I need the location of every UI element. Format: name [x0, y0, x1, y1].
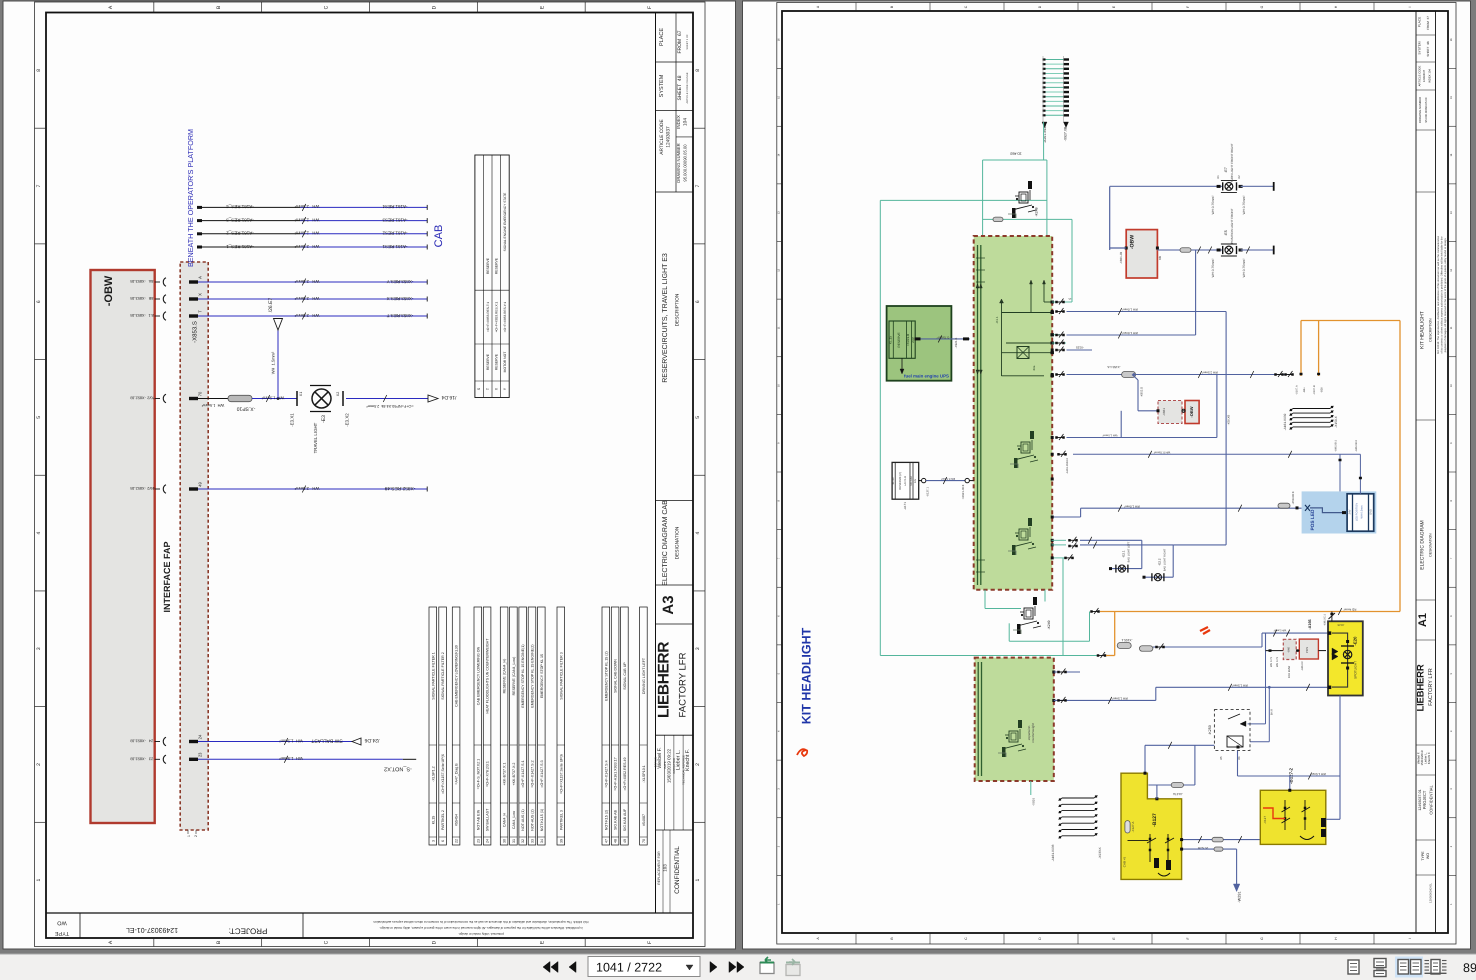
- svg-text:KL.15: KL.15: [888, 336, 892, 345]
- svg-text:HEAT FLOODLIGHTS UN COUNTERWEI: HEAT FLOODLIGHTS UN COUNTERWEIGHT: [486, 638, 490, 714]
- svg-text:C: C: [324, 940, 330, 944]
- svg-text:ARTICLE CODE: ARTICLE CODE: [659, 119, 665, 154]
- svg-text:-X155.1: -X155.1: [1121, 638, 1132, 642]
- svg-text:7: 7: [36, 184, 42, 187]
- svg-text:4: 4: [36, 531, 42, 534]
- svg-text:23: 23: [476, 839, 480, 843]
- svg-text:WH 2.5mm²: WH 2.5mm²: [294, 296, 319, 301]
- svg-text:PLACE: PLACE: [659, 28, 665, 46]
- svg-text:2: 2: [695, 763, 701, 766]
- svg-text:24V: 24V: [1349, 509, 1352, 514]
- svg-text:-E3.X1: -E3.X1: [290, 413, 295, 427]
- svg-text:4: 4: [695, 531, 701, 534]
- svg-text:-XLSP1.2: -XLSP1.2: [431, 766, 435, 781]
- svg-text:NOT-K15 (2): NOT-K15 (2): [604, 810, 608, 830]
- svg-text:-A166: -A166: [1308, 619, 1312, 629]
- svg-text:23: 23: [198, 752, 203, 757]
- svg-text:-X927.XB: -X927.XB: [1064, 126, 1068, 141]
- svg-text:34: 34: [540, 839, 544, 843]
- svg-text:WO: WO: [57, 920, 67, 926]
- svg-text:CAB EMERGENCY LOWERING(KL30: CAB EMERGENCY LOWERING(KL30: [455, 645, 459, 707]
- svg-text:BN R: BN R: [1271, 709, 1274, 715]
- svg-text:6: 6: [36, 300, 42, 303]
- svg-text:WH 1.5mm²: WH 1.5mm²: [261, 395, 284, 400]
- svg-text:1: 1: [695, 879, 701, 882]
- svg-text:WH 0.75mm²: WH 0.75mm²: [1211, 259, 1215, 278]
- svg-text:6: 6: [695, 300, 701, 303]
- svg-text:KIT HEADLIGHT: KIT HEADLIGHT: [1420, 311, 1426, 349]
- svg-text:SYSTEM: SYSTEM: [1418, 41, 1422, 54]
- svg-text:DESCRIPTION: DESCRIPTION: [675, 293, 681, 326]
- svg-text:RESERVE: RESERVE: [494, 257, 498, 274]
- svg-text:8B: 8B: [1158, 256, 1162, 260]
- svg-text:24V: 24V: [911, 336, 915, 343]
- svg-text:WH 1.5mm²: WH 1.5mm²: [271, 351, 276, 374]
- svg-text:-X107.A: -X107.A: [1296, 385, 1299, 395]
- svg-text:SIG.KAB AUF: SIG.KAB AUF: [623, 808, 627, 831]
- svg-text:-X852.RES.49: -X852.RES.49: [384, 485, 415, 491]
- svg-text:X1: X1: [299, 392, 303, 396]
- svg-text:SPOT: SPOT: [1337, 624, 1344, 627]
- svg-text:A3: A3: [660, 595, 677, 614]
- svg-text:-E5: -E5: [1224, 230, 1228, 236]
- svg-text:ARTICLE CODE CHANGE: ARTICLE CODE CHANGE: [686, 72, 689, 103]
- svg-text:WH 1mm²: WH 1mm²: [1274, 629, 1287, 633]
- svg-text:-X853.RES.Y: -X853.RES.Y: [387, 279, 414, 284]
- svg-text:TURN LIGHT FRONT RIGHT: TURN LIGHT FRONT RIGHT: [1230, 143, 1234, 182]
- svg-text:-B127: -B127: [1152, 813, 1158, 827]
- svg-text:23: 23: [149, 756, 153, 760]
- svg-text:LED POSITION: LED POSITION: [1356, 503, 1359, 521]
- svg-text:SIG.KAB: SIG.KAB: [910, 476, 913, 486]
- svg-text:30: 30: [503, 839, 507, 843]
- svg-text:SHEET 4B: SHEET 4B: [1426, 41, 1430, 56]
- svg-text:-X853.S: -X853.S: [192, 321, 199, 343]
- svg-text:RESERVE (2): RESERVE (2): [898, 472, 902, 490]
- svg-text:6: 6: [441, 840, 445, 842]
- svg-text:X1: X1: [1216, 175, 1220, 179]
- svg-text:8: 8: [36, 69, 42, 72]
- svg-text:WH 2.5mm²: WH 2.5mm²: [294, 204, 319, 209]
- svg-text:F: F: [647, 6, 653, 9]
- svg-text:LIEBHERR: LIEBHERR: [656, 642, 673, 718]
- svg-text:D: D: [431, 5, 437, 9]
- svg-text:WH 1.0mm²: WH 1.0mm²: [1124, 504, 1140, 508]
- svg-text:#54087: #54087: [642, 814, 646, 826]
- svg-text:=O+F=NP50.X4:8k 2.5mm²: =O+F=NP50.X4:8k 2.5mm²: [366, 404, 414, 408]
- svg-text:-E20: -E20: [1353, 636, 1358, 646]
- svg-text:-X952.D: -X952.D: [1140, 387, 1144, 397]
- svg-text:/16.D4: /16.D4: [441, 394, 456, 400]
- svg-text:SIGNAL CAB UP: SIGNAL CAB UP: [623, 662, 627, 690]
- svg-text:1200000343-EL: 1200000343-EL: [1429, 883, 1433, 903]
- svg-text:PLACE: PLACE: [1418, 17, 1422, 27]
- svg-text:89: 89: [1463, 961, 1476, 975]
- svg-text:-K1.1: -K1.1: [995, 316, 999, 324]
- svg-text:12493037: 12493037: [666, 126, 672, 148]
- svg-text:1D.4B3: 1D.4B3: [1010, 152, 1021, 156]
- svg-text:KIT HEADLIGHT: KIT HEADLIGHT: [800, 627, 814, 724]
- svg-text:RESERVE: RESERVE: [486, 353, 490, 370]
- svg-text:DRAWING NUMBER: DRAWING NUMBER: [676, 143, 681, 182]
- svg-text:protected. Utility model or de: protected. Utility model or design.: [458, 932, 504, 936]
- svg-text:-A161.X933:2: -A161.X933:2: [1066, 458, 1069, 474]
- svg-text:counterweight: counterweight: [1031, 723, 1035, 743]
- svg-text:SIGNAL PARTICLE FILTER 1: SIGNAL PARTICLE FILTER 1: [431, 652, 435, 699]
- svg-text:TRAVEL LIGHT: TRAVEL LIGHT: [313, 422, 318, 453]
- svg-text:=O+F=X1157,Seite UP(6: =O+F=X1157,Seite UP(6: [559, 754, 563, 794]
- svg-text:-X46.XC: -X46.XC: [1301, 661, 1304, 671]
- svg-text:-A161.RES_3: -A161.RES_3: [226, 217, 254, 222]
- svg-text:95.000.00090.05.00: 95.000.00090.05.00: [1424, 97, 1428, 122]
- svg-text:=X921.B: =X921.B: [906, 334, 910, 346]
- svg-text:SYSTEM: SYSTEM: [659, 74, 665, 97]
- svg-text:1: 1: [187, 835, 191, 837]
- svg-text:NOT-KL15 (1): NOT-KL15 (1): [540, 809, 544, 831]
- svg-text:PROJECT: PROJECT: [1422, 790, 1427, 809]
- svg-text:WH 1.5mm²: WH 1.5mm²: [1102, 434, 1117, 438]
- svg-text:F: F: [1186, 6, 1190, 8]
- svg-text:-A161.RES_2: -A161.RES_2: [226, 231, 254, 236]
- svg-text:+A171.B: +A171.B: [904, 476, 907, 486]
- svg-text:24: 24: [198, 734, 203, 739]
- svg-text:CAB EMERGENCY LOWERING ON: CAB EMERGENCY LOWERING ON: [476, 646, 480, 705]
- svg-text:-OBW: -OBW: [1130, 235, 1136, 250]
- svg-text:5: 5: [36, 416, 42, 419]
- svg-text:LIEBHERR: LIEBHERR: [1416, 664, 1427, 711]
- svg-text:EMERGENCY STOP KL 15 ENGINE(1): EMERGENCY STOP KL 15 ENGINE(1): [521, 644, 525, 707]
- svg-text:WH 1.5mm²: WH 1.5mm²: [279, 756, 303, 761]
- svg-text:-X150.1:A: -X150.1:A: [1107, 365, 1120, 369]
- svg-text:WH 0.75mm²: WH 0.75mm²: [1211, 196, 1215, 215]
- svg-text:SW BALLAST: SW BALLAST: [486, 808, 490, 831]
- svg-text:WH 0.75: WH 0.75: [1270, 656, 1273, 667]
- svg-text:-X58.XB:8: -X58.XB:8: [1291, 491, 1295, 504]
- svg-text:47: 47: [604, 839, 608, 843]
- svg-text:A: A: [198, 276, 203, 279]
- svg-text:-X150.X: -X150.X: [1334, 415, 1338, 427]
- svg-text:TYPE: TYPE: [54, 930, 69, 936]
- svg-text:2: 2: [194, 835, 198, 837]
- svg-text:POSITION LIGHT FRONT: POSITION LIGHT FRONT: [1230, 208, 1234, 243]
- svg-text:WH 0.75mm²: WH 0.75mm²: [1242, 196, 1246, 215]
- svg-text:104: 104: [683, 118, 689, 126]
- svg-text:-B4+: -B4+: [1303, 387, 1306, 393]
- svg-text:103: 103: [663, 864, 668, 872]
- svg-text:WH 1.0mm²: WH 1.0mm²: [1122, 308, 1138, 312]
- svg-text:33: 33: [531, 839, 535, 843]
- svg-text:NOT-AUS (2): NOT-AUS (2): [531, 809, 535, 830]
- svg-text:-K248: -K248: [1035, 207, 1039, 216]
- svg-text:X2: X2: [1237, 175, 1241, 179]
- svg-text:REPLACEMENT FOR: REPLACEMENT FOR: [657, 851, 661, 885]
- svg-text:8A: 8A: [148, 279, 153, 283]
- svg-text:-A161.RES3: -A161.RES3: [382, 217, 408, 222]
- svg-text:=O+F-X78:2/3:1: =O+F-X78:2/3:1: [486, 761, 490, 787]
- svg-text:G: G: [1260, 5, 1264, 8]
- svg-text:D: D: [431, 940, 437, 944]
- svg-text:WH 0.75: WH 0.75: [1276, 656, 1279, 667]
- svg-text:=X921.JB:8: =X921.JB:8: [961, 484, 965, 499]
- svg-text:fuel main engine UPS: fuel main engine UPS: [904, 374, 949, 379]
- svg-text:86a: 86a: [1032, 365, 1036, 370]
- svg-text:DESIGNATION: DESIGNATION: [1429, 533, 1433, 557]
- svg-text:RESERVE (CAN4_Low): RESERVE (CAN4_Low): [512, 657, 516, 696]
- svg-text:-X46.XB:2: -X46.XB:2: [1355, 440, 1358, 452]
- svg-text:DRAWING NUMBER: DRAWING NUMBER: [1418, 97, 1422, 123]
- svg-text:-X853.JB: -X853.JB: [130, 313, 146, 317]
- svg-text:2: 2: [36, 763, 42, 766]
- svg-text:-X46.XB:1: -X46.XB:1: [1335, 440, 1338, 452]
- svg-text:RESERVECIRCUITS, TRAVEL LIGHT: RESERVECIRCUITS, TRAVEL LIGHT E3: [662, 253, 669, 383]
- svg-text:BAD LIGHT RIGHT: BAD LIGHT RIGHT: [1164, 548, 1167, 571]
- svg-text:T: T: [198, 310, 203, 313]
- svg-text:85: 85: [1219, 756, 1223, 760]
- svg-text:EMERGENCY STOP KL 15 (2): EMERGENCY STOP KL 15 (2): [604, 651, 608, 700]
- svg-text:7: 7: [695, 184, 701, 187]
- svg-text:1041 / 2722: 1041 / 2722: [596, 961, 662, 975]
- svg-text:CAB: CAB: [433, 225, 445, 248]
- svg-text:WH 2.5mm²: WH 2.5mm²: [294, 486, 319, 491]
- svg-text:-X853.JB: -X853.JB: [130, 739, 146, 743]
- svg-text:SIGNAL CAB DOWN: SIGNAL CAB DOWN: [614, 659, 618, 693]
- svg-text:X2: X2: [336, 392, 340, 396]
- svg-text:SHEET 1 OF: SHEET 1 OF: [686, 34, 689, 50]
- svg-text:WH 1.5mm²: WH 1.5mm²: [201, 403, 224, 408]
- svg-text:39: 39: [559, 839, 563, 843]
- svg-text:-X127: -X127: [1263, 816, 1267, 824]
- svg-text:WH 1.0mm²: WH 1.0mm²: [1122, 331, 1138, 335]
- svg-text:=O+F-X1427.S:3: =O+F-X1427.S:3: [540, 760, 544, 787]
- svg-text:5: 5: [695, 416, 701, 419]
- svg-text:FROM 67: FROM 67: [677, 30, 683, 53]
- svg-text:-X58.XB: -X58.XB: [1227, 415, 1231, 426]
- svg-text:WH 2.5mm²: WH 2.5mm²: [294, 313, 319, 318]
- svg-text:TYPE: TYPE: [1421, 851, 1425, 861]
- svg-text:WH 1.5mm²: WH 1.5mm²: [1112, 696, 1128, 700]
- svg-text:-A161.RES2: -A161.RES2: [382, 231, 408, 236]
- svg-text:-OBW: -OBW: [103, 275, 115, 306]
- svg-text:I: I: [1408, 6, 1412, 7]
- svg-text:WH 0.75mm²: WH 0.75mm²: [1242, 259, 1246, 278]
- svg-text:24: 24: [149, 739, 153, 743]
- svg-text:WH 1.5mm²: WH 1.5mm²: [1310, 772, 1326, 776]
- svg-text:#55454: #55454: [455, 814, 459, 826]
- svg-text:BAD LIGHT LEFT: BAD LIGHT LEFT: [1128, 541, 1131, 562]
- svg-text:48: 48: [614, 839, 618, 843]
- svg-text:payment of damages. All rights: payment of damages. All rights reserved …: [1444, 237, 1447, 352]
- svg-text:-A161.X932: -A161.X932: [1283, 413, 1287, 430]
- svg-text:-OBW: -OBW: [1189, 406, 1194, 417]
- svg-text:-X852.JB: -X852.JB: [130, 396, 146, 400]
- svg-text:INDEX 104: INDEX 104: [1428, 69, 1432, 83]
- svg-text:CONFIDENTIAL: CONFIDENTIAL: [1429, 785, 1434, 815]
- svg-text:WH 2.5mm²: WH 2.5mm²: [294, 231, 319, 236]
- svg-text:-E2.1: -E2.1: [1122, 550, 1126, 558]
- svg-text:WH 2.5mm²: WH 2.5mm²: [1202, 371, 1218, 375]
- svg-text:RESERVE: RESERVE: [486, 257, 490, 274]
- svg-text:49/2: 49/2: [147, 486, 154, 490]
- svg-text:KL.30: KL.30: [892, 477, 895, 484]
- svg-text:SPOTLIGHT: SPOTLIGHT: [1354, 661, 1358, 679]
- svg-text:F: F: [1186, 937, 1190, 939]
- svg-text:CAN4_H: CAN4_H: [503, 813, 507, 828]
- svg-text:=O+F=X853.RES.X:1: =O+F=X853.RES.X:1: [494, 301, 498, 332]
- svg-text:-E2.2: -E2.2: [1158, 558, 1162, 566]
- svg-text:G: G: [1260, 937, 1264, 940]
- svg-text:=O+F-X1427.S:2: =O+F-X1427.S:2: [531, 760, 535, 787]
- svg-text:=O+F-S_NOT.X2:1: =O+F-S_NOT.X2:1: [476, 759, 480, 789]
- svg-text:-XLSP10:1: -XLSP10:1: [642, 765, 646, 782]
- svg-text:DESCRIPTION: DESCRIPTION: [1429, 318, 1433, 342]
- svg-text:24V: 24V: [914, 478, 917, 483]
- svg-text:3: 3: [695, 647, 701, 650]
- svg-text:+KK-B737.X:1: +KK-B737.X:1: [503, 763, 507, 786]
- svg-text:ELECTRIC DIAGRAM CAB: ELECTRIC DIAGRAM CAB: [662, 500, 669, 586]
- svg-text:INTERFACE FAP: INTERFACE FAP: [162, 541, 172, 612]
- svg-text:NOT-AUS (1): NOT-AUS (1): [521, 809, 525, 830]
- svg-text:-E7: -E7: [1224, 167, 1228, 173]
- svg-text:0.75mm²: 0.75mm²: [937, 336, 950, 340]
- svg-text:=O+F=X852.RES.49: =O+F=X852.RES.49: [623, 757, 627, 790]
- svg-text:PARTIKEL 2: PARTIKEL 2: [441, 810, 445, 830]
- svg-text:-K250: -K250: [1208, 725, 1212, 735]
- svg-text:WH 0.5mm: WH 0.5mm: [1361, 506, 1364, 519]
- svg-text:=O+F-X1427.S:1: =O+F-X1427.S:1: [521, 760, 525, 787]
- svg-text:/24.D6: /24.D6: [364, 737, 379, 743]
- svg-text:8B: 8B: [148, 296, 153, 300]
- svg-text:-X916: -X916: [1032, 798, 1036, 806]
- svg-text:12493037-01-EL: 12493037-01-EL: [126, 926, 178, 933]
- svg-text:SW BALLAST: SW BALLAST: [311, 737, 342, 743]
- svg-text:32: 32: [521, 839, 525, 843]
- svg-text:=O+F=X853.RES.T:1: =O+F=X853.RES.T:1: [486, 302, 490, 332]
- svg-text:-X.SP10: -X.SP10: [236, 406, 255, 412]
- svg-text:-X46.XC:1: -X46.XC:1: [1324, 613, 1327, 626]
- svg-text:is prohibited. Offenders will: is prohibited. Offenders will be held li…: [379, 926, 582, 930]
- svg-text:WH 2.5mm²: WH 2.5mm²: [294, 244, 319, 249]
- svg-text:ISO 16016: The reproduction, d: ISO 16016: The reproduction, distributio…: [373, 920, 588, 924]
- svg-text:8: 8: [695, 69, 701, 72]
- svg-text:NOT-AB EIN: NOT-AB EIN: [476, 809, 480, 830]
- svg-text:GND: GND: [1370, 509, 1373, 515]
- svg-text:PROJECT:: PROJECT:: [229, 927, 268, 936]
- svg-text:+KK-B737.X:2: +KK-B737.X:2: [512, 763, 516, 786]
- svg-text:8.1: 8.1: [148, 313, 153, 317]
- svg-text:-X107.B: -X107.B: [1313, 385, 1316, 395]
- svg-text:-X933.K: -X933.K: [1098, 846, 1102, 858]
- svg-text:3: 3: [36, 647, 42, 650]
- svg-text:PARTIKEL 3: PARTIKEL 3: [559, 810, 563, 830]
- svg-text:-X127A: -X127A: [1173, 792, 1183, 796]
- svg-text:-X853.JB: -X853.JB: [130, 279, 146, 283]
- svg-text:KL15: KL15: [431, 816, 435, 824]
- svg-text:-X137.1: -X137.1: [926, 487, 930, 497]
- svg-text:-A161.RES4: -A161.RES4: [382, 204, 408, 209]
- svg-text:ELECTRIC DIAGRAM: ELECTRIC DIAGRAM: [1420, 520, 1426, 569]
- svg-text:WO: WO: [1426, 853, 1430, 859]
- svg-text:EMERGENCY STOP KL 15 ENGINE(2): EMERGENCY STOP KL 15 ENGINE(2): [531, 644, 535, 707]
- svg-text:-X155: -X155: [1076, 346, 1084, 350]
- svg-text:BN 0.5mm²: BN 0.5mm²: [941, 477, 955, 481]
- svg-text:-X861: -X861: [1162, 408, 1166, 416]
- svg-text:RESERVE: RESERVE: [494, 353, 498, 370]
- svg-text:95.000.00090.05.00: 95.000.00090.05.00: [683, 144, 688, 182]
- svg-text:=O+F-A161.X933:17: =O+F-A161.X933:17: [614, 757, 618, 790]
- svg-text:CAN4_Low: CAN4_Low: [512, 811, 516, 830]
- svg-text:=A47_Diag.B: =A47_Diag.B: [455, 763, 459, 785]
- svg-text:-X853.RES.T: -X853.RES.T: [386, 313, 413, 318]
- svg-text:-X853.JB: -X853.JB: [130, 756, 146, 760]
- svg-text:FROM 67: FROM 67: [1426, 16, 1430, 30]
- svg-text:-X861.JB: -X861.JB: [1119, 252, 1123, 264]
- svg-text:WH 1.5mm²: WH 1.5mm²: [279, 738, 303, 743]
- svg-text:WH 0.75mm²: WH 0.75mm²: [1154, 451, 1171, 455]
- svg-text:Knecht F.: Knecht F.: [685, 749, 691, 771]
- svg-text:24: 24: [486, 839, 490, 843]
- svg-text:-A161.RES1: -A161.RES1: [382, 244, 408, 249]
- svg-text:15/03/2019 09:22: 15/03/2019 09:22: [666, 748, 671, 783]
- svg-text:RESERVE (CAN4_H): RESERVE (CAN4_H): [503, 659, 507, 694]
- svg-text:-A171: -A171: [903, 502, 907, 510]
- svg-text:70: 70: [642, 839, 646, 843]
- svg-text:-X853.RES.X: -X853.RES.X: [387, 296, 414, 301]
- svg-text:SIGNAL PARTICLE FILTER 2: SIGNAL PARTICLE FILTER 2: [441, 652, 445, 699]
- svg-text:C: C: [324, 5, 330, 9]
- svg-text:DRIVING LIGHT LEFT: DRIVING LIGHT LEFT: [642, 657, 646, 694]
- svg-text:SIG.KAB AB: SIG.KAB AB: [614, 809, 618, 830]
- svg-text:WH 1.5mm²: WH 1.5mm²: [1232, 683, 1248, 687]
- svg-text:DESIGNATION: DESIGNATION: [675, 526, 681, 559]
- svg-text:1: 1: [36, 879, 42, 882]
- svg-text:-K249: -K249: [1047, 620, 1051, 629]
- svg-text:49: 49: [623, 839, 627, 843]
- svg-text:=O+F=X853.RES.Y:1: =O+F=X853.RES.Y:1: [503, 302, 507, 333]
- svg-text:=O+F-X1427.S:4: =O+F-X1427.S:4: [604, 760, 608, 787]
- svg-text:FOR BMW: FOR BMW: [1288, 665, 1291, 678]
- svg-text:-B30: -B30: [1321, 387, 1324, 393]
- svg-text:MOTOR NOT: MOTOR NOT: [503, 352, 507, 373]
- svg-text:=O+F=X1157,Seite UP(6: =O+F=X1157,Seite UP(6: [441, 754, 445, 794]
- svg-text:-W291: -W291: [1238, 891, 1242, 902]
- svg-text:Knecht F.: Knecht F.: [1427, 752, 1431, 765]
- svg-text:CAB +5: CAB +5: [1123, 856, 1127, 867]
- svg-text:BENEATH THE OPERATOR'S PLATFOR: BENEATH THE OPERATOR'S PLATFORM: [186, 129, 195, 267]
- svg-text:RESERVE: RESERVE: [897, 332, 901, 347]
- svg-text:RD 4mm²: RD 4mm²: [1344, 608, 1357, 612]
- svg-text:-X852.JB: -X852.JB: [130, 486, 146, 490]
- svg-text:-A161.RES_4: -A161.RES_4: [226, 204, 254, 209]
- svg-text:WH 2.5mm²: WH 2.5mm²: [294, 217, 319, 222]
- svg-text:12493037: 12493037: [1422, 69, 1426, 82]
- svg-text:ARTICLE CODE: ARTICLE CODE: [1418, 66, 1422, 87]
- svg-text:FACTORY LFR: FACTORY LFR: [678, 652, 689, 717]
- svg-text:-X127.A: -X127.A: [1131, 822, 1135, 833]
- svg-text:-X46: -X46: [1287, 647, 1291, 653]
- svg-text:49: 49: [198, 482, 203, 487]
- svg-text:-E3: -E3: [321, 415, 327, 423]
- svg-text:INDEX: INDEX: [676, 115, 681, 129]
- svg-text:-A161.X933: -A161.X933: [1051, 844, 1055, 861]
- svg-text:X: X: [198, 293, 203, 296]
- svg-text:F: F: [647, 941, 653, 944]
- svg-text:70: 70: [198, 391, 203, 396]
- svg-text:-S_NOT.X2: -S_NOT.X2: [384, 765, 412, 771]
- svg-text:31: 31: [512, 839, 516, 843]
- svg-text:-X921.K: -X921.K: [954, 338, 958, 349]
- svg-text:POS: POS: [1305, 647, 1309, 653]
- svg-text:-E3.X2: -E3.X2: [345, 413, 350, 427]
